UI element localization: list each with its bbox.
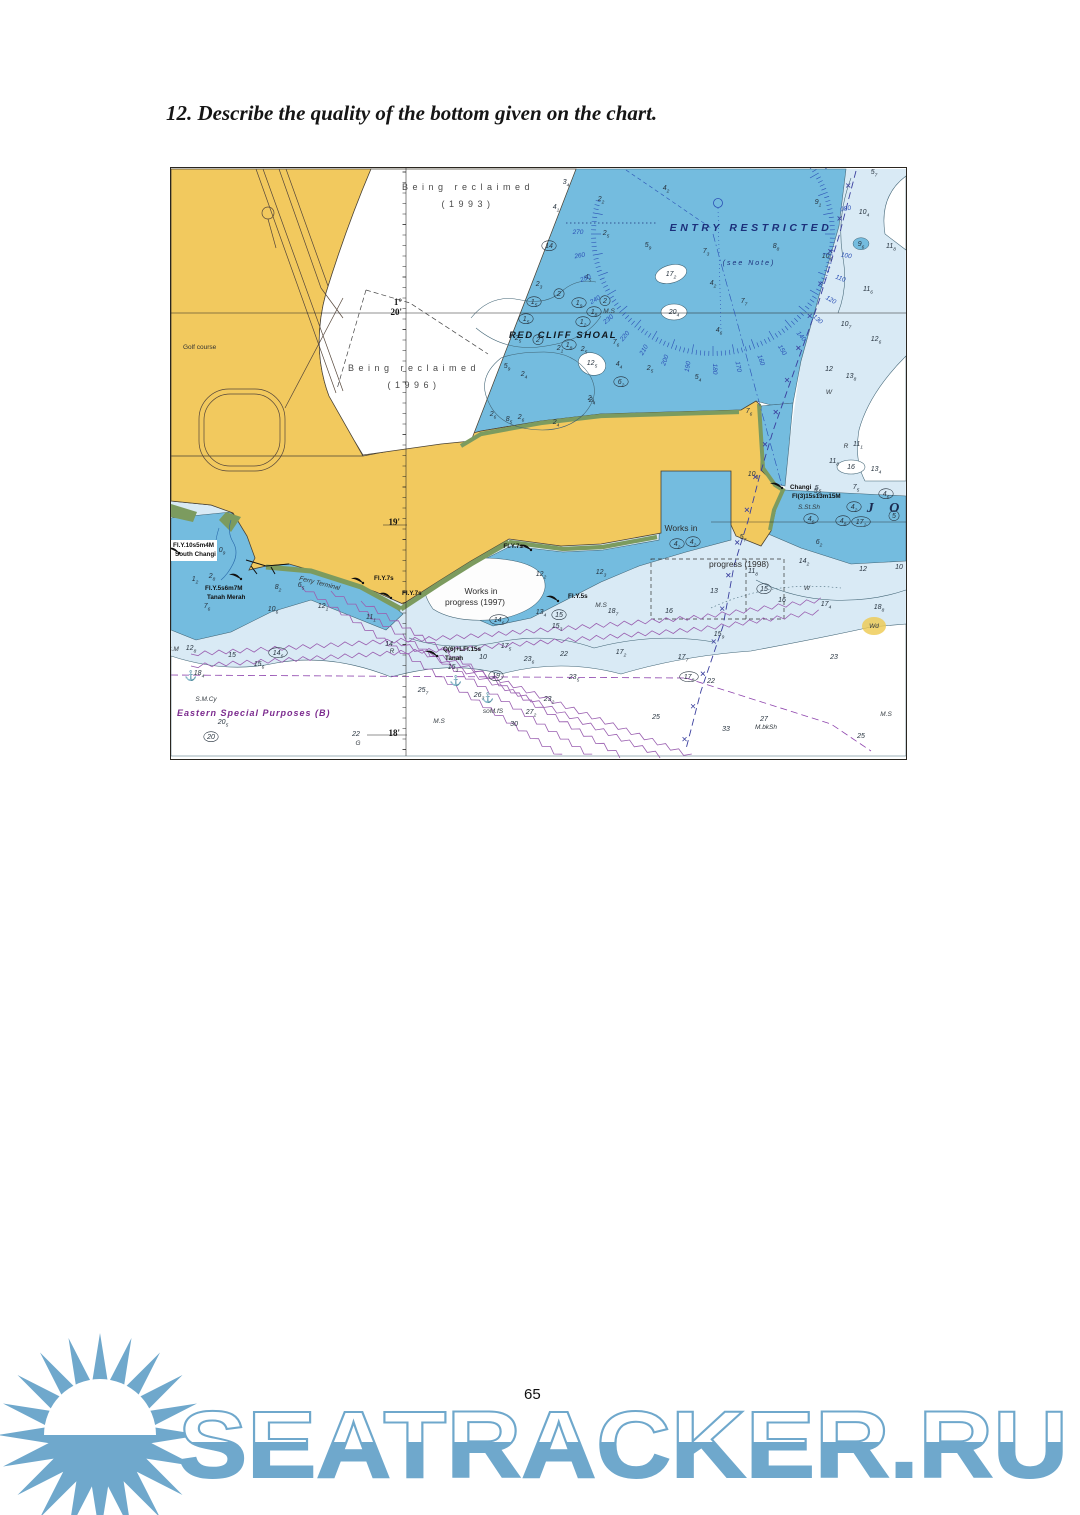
chart-label: Golf course: [183, 344, 217, 351]
sounding: 15: [555, 612, 563, 619]
document-page: 12. Describe the quality of the bottom g…: [0, 0, 1080, 1515]
bottom-quality-label: S.M.Cy: [195, 696, 217, 703]
page-number: 65: [524, 1386, 541, 1403]
chart-label: Works in: [465, 586, 498, 596]
light-position: [362, 582, 364, 584]
light-position: [530, 549, 532, 551]
bottom-quality-label: S.St.Sh: [798, 504, 820, 511]
bottom-quality-label: M.S: [880, 711, 892, 718]
chart-label: Being reclaimed: [402, 182, 534, 192]
sounding: 25: [651, 714, 660, 721]
light-label: Fl(3)15s13m15M: [792, 493, 841, 500]
chart-label: Being reclaimed: [348, 363, 480, 373]
compass-bearing: 180: [711, 364, 718, 375]
chart-label: (see Note): [723, 260, 776, 267]
chart-label: RED CLIFF SHOAL: [509, 330, 617, 341]
bottom-quality-label: R: [390, 648, 395, 655]
bottom-quality-label: M.bkSh: [755, 724, 777, 731]
sounding: 12: [825, 366, 833, 373]
chart-label: Eastern Special Purposes (B): [177, 708, 331, 718]
sounding: 10: [895, 564, 903, 571]
sounding: 23: [829, 654, 838, 661]
chart-label: 1°: [394, 297, 403, 307]
sounding: 15: [228, 652, 236, 659]
sounding: 22: [559, 651, 568, 658]
sounding: 2: [602, 298, 607, 305]
sounding: Wd: [869, 623, 879, 630]
sounding: 30: [510, 721, 518, 728]
sounding: 22: [706, 678, 715, 685]
sounding: 2: [556, 291, 561, 298]
sounding: 14: [545, 243, 553, 250]
sounding: 33: [722, 726, 730, 733]
light-label: Changi: [790, 484, 812, 491]
bottom-quality-label: W: [826, 389, 833, 396]
light-label: Fl.Y.5s: [568, 593, 588, 600]
light-label: Fl.Y.7s: [503, 543, 523, 550]
bottom-quality-label: G: [355, 740, 360, 747]
sounding: 12: [859, 566, 867, 573]
bottom-quality-label: M.S: [595, 602, 607, 609]
light-position: [390, 597, 392, 599]
question-heading: 12. Describe the quality of the bottom g…: [166, 101, 926, 126]
seatracker-watermark: SEATRACKER.RU: [0, 1330, 1080, 1515]
chart-canvas: 344122254259738842774645M.S9157104961181…: [171, 168, 906, 759]
light-label: Fl.Y.10s5m4M: [173, 542, 214, 549]
light-position: [781, 487, 783, 489]
chart-label: progress (1997): [445, 597, 505, 607]
sounding: 15: [760, 586, 768, 593]
sounding: 16: [665, 608, 673, 615]
sounding: 25: [856, 733, 865, 740]
sounding: 10: [479, 654, 487, 661]
light-label: Fl.Y.7s: [402, 590, 422, 597]
chart-label: Works in: [665, 523, 698, 533]
chart-label: 18': [388, 728, 400, 738]
sounding: 16: [778, 597, 786, 604]
chart-label: ENTRY RESTRICTED: [670, 222, 833, 234]
bottom-quality-label: M.S: [433, 718, 445, 725]
sounding: 27: [759, 716, 769, 723]
chart-label: J O: [866, 501, 906, 516]
sounding: 16: [847, 464, 855, 471]
sounding: 22: [351, 731, 360, 738]
light-label: Tanah Merah: [207, 594, 246, 601]
compass-bearing: 270: [572, 229, 584, 236]
compass-tick: [810, 168, 814, 169]
light-label: Fl.Y.7s: [374, 575, 394, 582]
chart-label: (1993): [441, 199, 494, 209]
sounding: 13: [710, 588, 718, 595]
light-label: South Changi: [175, 551, 216, 558]
light-position: [240, 578, 242, 580]
anchor-symbol: ⚓: [185, 669, 197, 682]
light-label: Q(6)+LFl.15s: [443, 646, 481, 653]
sounding: 19: [492, 673, 500, 680]
light-position: [557, 600, 559, 602]
anchor-symbol: ⚓: [450, 674, 462, 687]
bottom-quality-label: soM.fS: [483, 708, 504, 715]
anchor-symbol: ⚓: [482, 691, 494, 704]
watermark-text: SEATRACKER.RU: [178, 1392, 1068, 1498]
chart-label: 20': [390, 307, 402, 317]
light-label: Tanah: [445, 655, 463, 662]
chart-label: (1996): [387, 380, 440, 390]
sounding: 14: [385, 641, 393, 648]
bottom-quality-label: W: [804, 585, 811, 592]
bottom-quality-label: S.M: [171, 646, 179, 653]
light-label: Fl.Y.5s6m7M: [205, 585, 242, 592]
light-position: [436, 655, 438, 657]
sun-logo: [0, 1333, 202, 1515]
chart-label: progress (1998): [709, 559, 769, 569]
nautical-chart-figure: 344122254259738842774645M.S9157104961181…: [170, 167, 907, 760]
sounding: 20: [206, 734, 215, 741]
chart-label: 19': [388, 517, 400, 527]
bottom-quality-label: R: [844, 443, 849, 450]
